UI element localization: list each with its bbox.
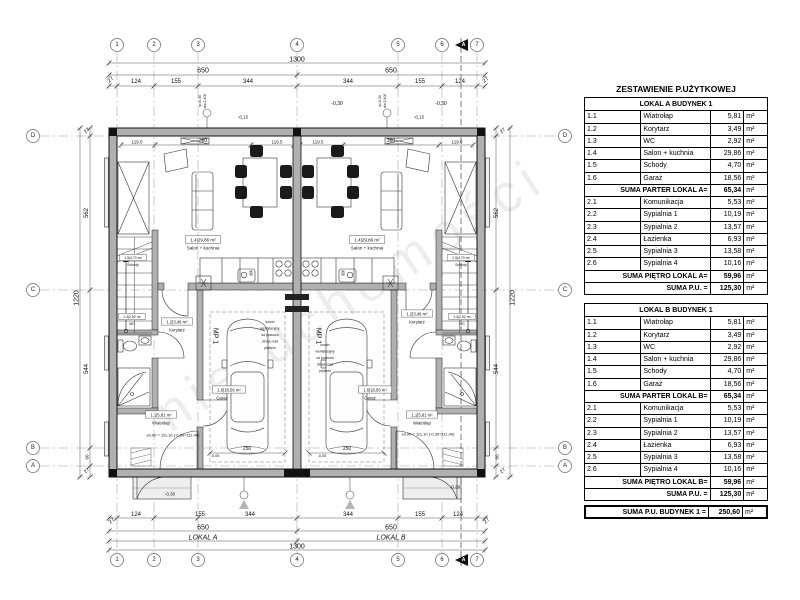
plan-annotation: 1.2|3,49 m² bbox=[406, 312, 428, 317]
section-marker: A bbox=[462, 42, 466, 48]
table-row: SUMA PIĘTRO LOKAL B=59,96m² bbox=[585, 476, 767, 488]
plan-annotation: Garaż bbox=[216, 396, 227, 401]
axis-bubble: C bbox=[31, 287, 36, 293]
area-unit: m² bbox=[743, 428, 767, 439]
summary-title: ZESTAWIENIE P.UŻYTKOWEJ bbox=[584, 84, 768, 94]
room-name: Schody bbox=[640, 366, 709, 377]
plan-annotation: -0,30 bbox=[450, 485, 461, 490]
axis-bubble: B bbox=[31, 445, 35, 451]
table-row: 1.4Salon + kuchnia29,86m² bbox=[585, 353, 767, 365]
plan-annotation: piętrem bbox=[319, 369, 330, 373]
plan-annotation: 562 bbox=[84, 207, 90, 218]
plan-annotation: 250 bbox=[343, 446, 352, 452]
room-name: Komunikacja bbox=[640, 197, 709, 208]
plan-annotation: rp=0,00 bbox=[198, 95, 202, 107]
room-name: Sypialnia 4 bbox=[640, 464, 709, 475]
area-unit: m² bbox=[743, 197, 767, 208]
plan-annotation: -0,05 bbox=[318, 454, 327, 458]
plan-annotation: wentylacyjny bbox=[260, 327, 280, 331]
room-number: 2.1 bbox=[585, 197, 640, 208]
area-unit: m² bbox=[743, 173, 767, 184]
room-area: 3,49 bbox=[710, 124, 744, 135]
plan-annotation: 1.1|5,81 m² bbox=[150, 413, 172, 418]
room-name: Sypialnia 1 bbox=[640, 209, 709, 220]
room-area: 6,93 bbox=[710, 440, 744, 451]
table-row: 2.4Łazienka6,93m² bbox=[585, 439, 767, 451]
room-number: 2.5 bbox=[585, 246, 640, 257]
plan-annotation: WC bbox=[129, 322, 135, 326]
table-row: 2.1Komunikacja5,53m² bbox=[585, 196, 767, 208]
room-area: 5,81 bbox=[710, 111, 744, 122]
area-unit: m² bbox=[743, 403, 767, 414]
area-unit: m² bbox=[743, 379, 767, 390]
area-unit: m² bbox=[743, 342, 767, 353]
plan-annotation: Wiatrołap bbox=[152, 421, 170, 426]
room-name: Sypialnia 2 bbox=[640, 428, 709, 439]
table-row: 2.5Sypialnia 313,58m² bbox=[585, 245, 767, 257]
room-number: 1.5 bbox=[585, 160, 640, 171]
plan-annotation: 119.5 bbox=[132, 140, 143, 145]
table-header: LOKAL B BUDYNEK 1 bbox=[585, 304, 767, 316]
sum-label: SUMA PIĘTRO LOKAL B= bbox=[585, 477, 710, 488]
sum-area: 125,30 bbox=[710, 283, 744, 294]
room-area: 2,92 bbox=[710, 342, 744, 353]
plan-annotation: 155 bbox=[195, 512, 206, 518]
plan-annotation: 650 bbox=[385, 68, 397, 75]
plan-annotation: -0,05 bbox=[211, 454, 220, 458]
room-area: 13,57 bbox=[710, 222, 744, 233]
room-name: Korytarz bbox=[640, 124, 709, 135]
area-unit: m² bbox=[743, 440, 767, 451]
room-area: 13,57 bbox=[710, 428, 744, 439]
plan-annotation: 119.5 bbox=[272, 140, 283, 145]
blueprint-sheet: nieruchomości bbox=[0, 0, 800, 600]
sum-area: 59,96 bbox=[710, 477, 744, 488]
plan-annotation: wentylacyjny bbox=[315, 350, 335, 354]
room-area: 13,58 bbox=[710, 246, 744, 257]
area-unit: m² bbox=[743, 391, 767, 402]
table-row: 2.6Sypialnia 410,16m² bbox=[585, 463, 767, 475]
room-number: 2.3 bbox=[585, 428, 640, 439]
table-row: 1.6Garaż18,56m² bbox=[585, 378, 767, 390]
plan-annotation: Korytarz bbox=[409, 320, 425, 325]
plan-annotation: 1.6|18,56 m² bbox=[217, 388, 241, 393]
plan-annotation: 119.5 bbox=[452, 140, 463, 145]
plan-annotation: dn=2,400 bbox=[383, 94, 387, 109]
grand-total-label: SUMA P.U. BUDYNEK 1 = bbox=[586, 507, 708, 517]
plan-annotation: 27 bbox=[499, 127, 507, 135]
room-number: 2.4 bbox=[585, 440, 640, 451]
table-row: 1.2Korytarz3,49m² bbox=[585, 123, 767, 135]
area-unit: m² bbox=[743, 258, 767, 269]
sum-label: SUMA PARTER LOKAL A= bbox=[585, 185, 710, 196]
room-area: 5,53 bbox=[710, 197, 744, 208]
room-name: Łazienka bbox=[640, 234, 709, 245]
room-area: 5,53 bbox=[710, 403, 744, 414]
plan-annotation: 1.2|3,49 m² bbox=[166, 320, 188, 325]
plan-annotation: -0,30 bbox=[435, 101, 447, 107]
plan-annotation: 650 bbox=[197, 525, 209, 532]
room-number: 2.2 bbox=[585, 209, 640, 220]
room-area: 10,19 bbox=[710, 209, 744, 220]
plan-annotation: Korytarz bbox=[169, 328, 185, 333]
area-unit: m² bbox=[743, 330, 767, 341]
plan-annotation: Salon + kuchnia bbox=[187, 246, 220, 251]
plan-annotation: -0,15 bbox=[238, 115, 249, 120]
plan-annotation: od poziomu bbox=[316, 356, 334, 360]
room-name: Sypialnia 3 bbox=[640, 246, 709, 257]
grand-total-value: 250,60 bbox=[708, 507, 742, 517]
plan-annotation: WC bbox=[459, 322, 465, 326]
table-row: 1.1Wiatrołap5,81m² bbox=[585, 110, 767, 122]
plan-annotation: ±0,00 = 111,10 (-0,30=111,40) bbox=[401, 432, 455, 437]
axis-bubble: A bbox=[563, 463, 567, 469]
sum-area: 65,34 bbox=[710, 391, 744, 402]
plan-annotation: 544 bbox=[84, 363, 90, 374]
plan-annotation: Garaż bbox=[364, 396, 375, 401]
axis-bubble: D bbox=[563, 133, 568, 139]
room-name: Wiatrołap bbox=[640, 317, 709, 328]
room-number: 2.3 bbox=[585, 222, 640, 233]
plan-annotation: 155 bbox=[171, 79, 182, 85]
plan-annotation: -0,30 bbox=[331, 101, 343, 107]
plan-annotation: 1.5|4,70 m² bbox=[124, 256, 142, 260]
plan-annotation: ±0,00 = 111,10 (-0,30=111,40) bbox=[146, 433, 200, 438]
plan-annotation: 1.4|29,86 m² bbox=[354, 238, 380, 243]
table-row: 1.3WC2,92m² bbox=[585, 341, 767, 353]
plan-annotation: stropu nad bbox=[317, 363, 333, 367]
plan-annotation: Salon + kuchnia bbox=[351, 246, 384, 251]
section-marker: A bbox=[462, 557, 466, 563]
plan-annotation: LOKAL B bbox=[376, 535, 405, 542]
room-number: 2.2 bbox=[585, 415, 640, 426]
plan-annotation: LOKAL A bbox=[189, 535, 218, 542]
area-unit: m² bbox=[742, 507, 766, 517]
plan-annotation: 562 bbox=[494, 207, 500, 218]
area-unit: m² bbox=[743, 246, 767, 257]
room-area: 3,49 bbox=[710, 330, 744, 341]
area-unit: m² bbox=[743, 452, 767, 463]
table-row: 1.5Schody4,70m² bbox=[585, 159, 767, 171]
plan-annotation: Wiatrołap bbox=[413, 421, 431, 426]
room-name: Garaż bbox=[640, 379, 709, 390]
room-number: 2.5 bbox=[585, 452, 640, 463]
area-unit: m² bbox=[743, 477, 767, 488]
room-number: 1.1 bbox=[585, 317, 640, 328]
room-area: 4,70 bbox=[710, 160, 744, 171]
plan-annotation: 27 bbox=[499, 467, 507, 475]
plan-annotation: 1220 bbox=[74, 290, 81, 306]
plan-annotation: 124 bbox=[131, 79, 142, 85]
plan-annotation: 124 bbox=[131, 512, 142, 518]
room-number: 1.6 bbox=[585, 173, 640, 184]
plan-annotation: MP 1 bbox=[212, 328, 219, 344]
plan-annotation: Schody bbox=[127, 263, 139, 267]
table-row: SUMA P.U. =125,30m² bbox=[585, 282, 767, 294]
axis-bubble: D bbox=[31, 133, 36, 139]
table-row: 2.2Sypialnia 110,19m² bbox=[585, 414, 767, 426]
plan-annotation: piętrem bbox=[264, 346, 275, 350]
room-area: 10,16 bbox=[710, 258, 744, 269]
table-row: 2.3Sypialnia 213,57m² bbox=[585, 427, 767, 439]
sum-area: 59,96 bbox=[710, 271, 744, 282]
sum-label: SUMA P.U. = bbox=[585, 283, 710, 294]
plan-annotation: 250 bbox=[243, 446, 252, 452]
plan-annotation: 650 bbox=[197, 68, 209, 75]
area-unit: m² bbox=[743, 415, 767, 426]
room-number: 1.1 bbox=[585, 111, 640, 122]
room-name: Komunikacja bbox=[640, 403, 709, 414]
table-row: SUMA PIĘTRO LOKAL A=59,96m² bbox=[585, 270, 767, 282]
area-unit: m² bbox=[743, 136, 767, 147]
plan-annotation: 344 bbox=[343, 79, 354, 85]
room-area: 29,86 bbox=[710, 354, 744, 365]
table-row: 2.6Sypialnia 410,16m² bbox=[585, 257, 767, 269]
plan-annotation: 155 bbox=[415, 79, 426, 85]
plan-annotation: 1300 bbox=[289, 57, 305, 64]
room-number: 2.6 bbox=[585, 464, 640, 475]
unit-a-geometry bbox=[105, 109, 294, 509]
room-name: Salon + kuchnia bbox=[640, 148, 709, 159]
area-table: LOKAL B BUDYNEK 11.1Wiatrołap5,81m²1.2Ko… bbox=[584, 303, 768, 501]
plan-annotation: 1.4|29,86 m² bbox=[190, 238, 216, 243]
room-number: 2.4 bbox=[585, 234, 640, 245]
room-area: 6,93 bbox=[710, 234, 744, 245]
area-unit: m² bbox=[743, 271, 767, 282]
area-unit: m² bbox=[743, 464, 767, 475]
table-header-row: LOKAL A BUDYNEK 1 bbox=[585, 98, 767, 110]
table-row: 1.1Wiatrołap5,81m² bbox=[585, 316, 767, 328]
plan-annotation: 60 bbox=[85, 454, 90, 460]
table-row: 1.2Korytarz3,49m² bbox=[585, 329, 767, 341]
room-area: 5,81 bbox=[710, 317, 744, 328]
area-unit: m² bbox=[743, 185, 767, 196]
table-row: 2.2Sypialnia 110,19m² bbox=[585, 208, 767, 220]
plan-annotation: rp=0,00 bbox=[378, 95, 382, 107]
area-unit: m² bbox=[743, 366, 767, 377]
plan-annotation: 1220 bbox=[510, 290, 517, 306]
plan-annotation: 344 bbox=[343, 512, 354, 518]
axis-bubble: B bbox=[563, 445, 567, 451]
room-number: 1.4 bbox=[585, 354, 640, 365]
plan-annotation: 1.1|5,81 m² bbox=[411, 413, 433, 418]
area-unit: m² bbox=[743, 283, 767, 294]
area-unit: m² bbox=[743, 124, 767, 135]
room-number: 2.1 bbox=[585, 403, 640, 414]
room-area: 18,56 bbox=[710, 173, 744, 184]
area-unit: m² bbox=[743, 354, 767, 365]
room-name: WC bbox=[640, 136, 709, 147]
table-row: 2.1Komunikacja5,53m² bbox=[585, 402, 767, 414]
room-name: Garaż bbox=[640, 173, 709, 184]
table-row: SUMA PARTER LOKAL A=65,34m² bbox=[585, 184, 767, 196]
axis-bubble: C bbox=[563, 287, 568, 293]
table-row: SUMA P.U. =125,30m² bbox=[585, 488, 767, 500]
room-number: 1.3 bbox=[585, 342, 640, 353]
table-header-row: LOKAL B BUDYNEK 1 bbox=[585, 304, 767, 316]
plan-annotation: komin bbox=[320, 343, 329, 347]
plan-annotation: 344 bbox=[245, 512, 256, 518]
plan-annotation: 155 bbox=[415, 512, 426, 518]
plan-annotation: -0,30 bbox=[165, 492, 176, 497]
room-name: Sypialnia 4 bbox=[640, 258, 709, 269]
room-area: 13,58 bbox=[710, 452, 744, 463]
room-number: 1.2 bbox=[585, 330, 640, 341]
plan-annotation: 344 bbox=[243, 79, 254, 85]
room-area: 18,56 bbox=[710, 379, 744, 390]
plan-annotation: 544 bbox=[494, 363, 500, 374]
table-row: 1.6Garaż18,56m² bbox=[585, 172, 767, 184]
plan-annotation: 360 bbox=[199, 138, 208, 144]
plan-annotation: 124 bbox=[455, 79, 466, 85]
room-name: Sypialnia 3 bbox=[640, 452, 709, 463]
room-number: 1.2 bbox=[585, 124, 640, 135]
room-area: 2,92 bbox=[710, 136, 744, 147]
table-row: 1.5Schody4,70m² bbox=[585, 365, 767, 377]
table-row: 2.5Sypialnia 313,58m² bbox=[585, 451, 767, 463]
area-unit: m² bbox=[743, 234, 767, 245]
plan-annotation: 124 bbox=[453, 512, 464, 518]
plan-annotation: dn=2,400 bbox=[203, 94, 207, 109]
room-name: Sypialnia 1 bbox=[640, 415, 709, 426]
plan-annotation: komin bbox=[265, 320, 274, 324]
plan-annotation: 119.5 bbox=[313, 140, 324, 145]
plan-annotation: MP 1 bbox=[315, 328, 322, 344]
plan-annotation: 1.5|4,70 m² bbox=[452, 256, 470, 260]
area-unit: m² bbox=[743, 489, 767, 500]
room-number: 1.4 bbox=[585, 148, 640, 159]
area-unit: m² bbox=[743, 160, 767, 171]
plan-annotation: 360 bbox=[387, 138, 396, 144]
plan-annotation: 27 bbox=[107, 76, 116, 85]
plan-annotation: 60 bbox=[495, 454, 500, 460]
plan-annotation: 1300 bbox=[289, 544, 305, 551]
sum-label: SUMA PIĘTRO LOKAL A= bbox=[585, 271, 710, 282]
sum-area: 65,34 bbox=[710, 185, 744, 196]
table-row: 2.3Sypialnia 213,57m² bbox=[585, 221, 767, 233]
table-row: 2.4Łazienka6,93m² bbox=[585, 233, 767, 245]
plan-annotation: Schody bbox=[455, 263, 467, 267]
area-unit: m² bbox=[743, 111, 767, 122]
table-row: 1.4Salon + kuchnia29,86m² bbox=[585, 147, 767, 159]
plan-annotation: 1.6|18,56 m² bbox=[363, 388, 387, 393]
room-name: Sypialnia 2 bbox=[640, 222, 709, 233]
room-number: 1.5 bbox=[585, 366, 640, 377]
area-unit: m² bbox=[743, 317, 767, 328]
room-area: 10,16 bbox=[710, 464, 744, 475]
area-unit: m² bbox=[743, 222, 767, 233]
room-number: 1.3 bbox=[585, 136, 640, 147]
plan-annotation: stropu nad bbox=[262, 340, 278, 344]
room-area: 10,19 bbox=[710, 415, 744, 426]
sum-label: SUMA P.U. = bbox=[585, 489, 710, 500]
grand-total-box: SUMA P.U. BUDYNEK 1 =250,60m² bbox=[584, 505, 768, 519]
area-unit: m² bbox=[743, 209, 767, 220]
area-unit: m² bbox=[743, 148, 767, 159]
plan-annotation: od poziomu bbox=[261, 333, 279, 337]
plan-annotation: 1.3|2,92 m² bbox=[453, 315, 471, 319]
room-name: Schody bbox=[640, 160, 709, 171]
room-name: Salon + kuchnia bbox=[640, 354, 709, 365]
room-name: Wiatrołap bbox=[640, 111, 709, 122]
room-name: Korytarz bbox=[640, 330, 709, 341]
room-area: 4,70 bbox=[710, 366, 744, 377]
sum-label: SUMA PARTER LOKAL B= bbox=[585, 391, 710, 402]
room-number: 2.6 bbox=[585, 258, 640, 269]
table-header: LOKAL A BUDYNEK 1 bbox=[585, 98, 767, 110]
room-area: 29,86 bbox=[710, 148, 744, 159]
plan-annotation: -0,15 bbox=[414, 115, 425, 120]
sum-area: 125,30 bbox=[710, 489, 744, 500]
plan-annotation: 1.3|2,92 m² bbox=[123, 315, 141, 319]
table-row: SUMA PARTER LOKAL B=65,34m² bbox=[585, 390, 767, 402]
table-row: 1.3WC2,92m² bbox=[585, 135, 767, 147]
area-table: LOKAL A BUDYNEK 11.1Wiatrołap5,81m²1.2Ko… bbox=[584, 97, 768, 295]
plan-annotation: 650 bbox=[385, 525, 397, 532]
room-name: Łazienka bbox=[640, 440, 709, 451]
room-number: 1.6 bbox=[585, 379, 640, 390]
room-name: WC bbox=[640, 342, 709, 353]
axis-bubble: A bbox=[31, 463, 35, 469]
